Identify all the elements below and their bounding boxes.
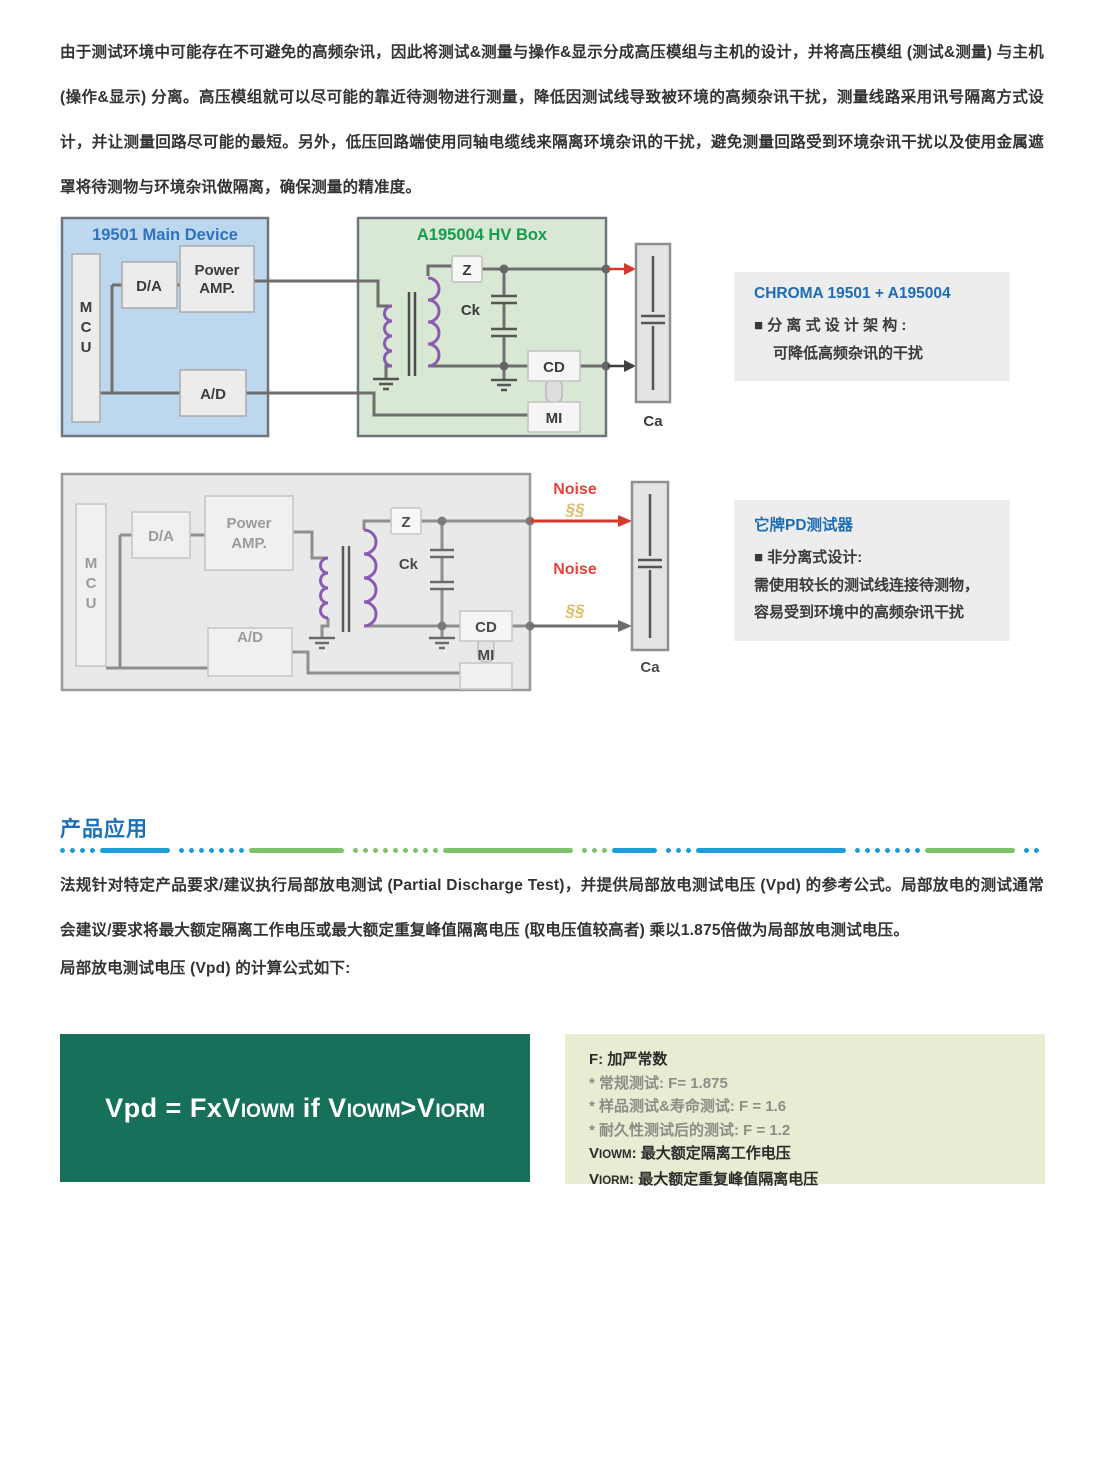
circuit-diagram-chroma-separated: 19501 Main Device A195004 HV Box [60,216,676,441]
da-label: D/A [136,278,162,295]
callout-line-2: 需使用较长的测试线连接待测物， [754,572,990,600]
callout-title: 它牌PD测试器 [754,513,990,535]
ck-label: Ck [399,556,419,573]
interference-glyph-bottom: §§ [565,601,585,620]
mcu-letter-m: M [85,555,98,572]
hv-output-arrow [608,263,636,275]
ca-dut [636,244,670,402]
formula-legend-box: F: 加严常数 * 常规测试: F= 1.875 * 样品测试&寿命测试: F … [565,1034,1045,1184]
formula-intro: 局部放电测试电压 (Vpd) 的计算公式如下: [60,946,1044,991]
callout-bullet-line: ■ 非分离式设计: [754,544,990,572]
legend-endurance-test: * 耐久性测试后的测试: F = 1.2 [589,1119,1021,1143]
callout-bullet-line: ■ 分 离 式 设 计 架 构 : [754,312,990,340]
ck-label: Ck [461,302,481,319]
section-title-product-application: 产品应用 [60,813,148,843]
mcu-letter-c: C [86,575,97,592]
z-label: Z [401,514,410,531]
callout-other-brand: 它牌PD测试器 ■ 非分离式设计: 需使用较长的测试线连接待测物， 容易受到环境… [734,500,1010,641]
cd-mi-connector [546,379,562,403]
legend-viorm: VIORM: 最大额定重复峰值隔离电压 [589,1168,1021,1194]
mi-box [460,663,512,689]
diagram-row-other-brand: Ck M C U D/A Power AMP. A/D Z CD MI [60,470,1050,695]
legend-viowm: VIOWM: 最大额定隔离工作电压 [589,1142,1021,1168]
power-amp-box [205,496,293,570]
diagram-row-separated-design: 19501 Main Device A195004 HV Box [60,216,1050,441]
ad-label: A/D [200,386,226,403]
tester-box [62,474,530,690]
noisy-return-lead-arrow [530,620,632,632]
callout-line-3: 容易受到环境中的高频杂讯干扰 [754,599,990,627]
mcu-letter-u: U [81,339,92,356]
formula-text: Vpd = FxVIOWM if VIOWM>VIORM [105,1093,485,1124]
z-label: Z [462,262,471,279]
da-label: D/A [148,528,174,545]
section-divider [60,846,1044,854]
mi-label: MI [478,647,495,664]
power-amp-label-2: AMP. [231,535,267,552]
mcu-letter-m: M [80,299,93,316]
ca-label: Ca [640,659,660,676]
noise-label-bottom: Noise [553,561,597,578]
circuit-diagram-other-brand: Ck M C U D/A Power AMP. A/D Z CD MI [60,470,676,695]
formula-row: Vpd = FxVIOWM if VIOWM>VIORM F: 加严常数 * 常… [60,1034,1045,1184]
power-amp-box [180,246,254,312]
callout-line-2: 可降低高频杂讯的干扰 [754,340,990,368]
ad-label: A/D [237,629,263,646]
mcu-box [72,254,100,422]
power-amp-label-1: Power [226,515,271,532]
ca-dut [632,482,668,650]
callout-title: CHROMA 19501 + A195004 [754,285,990,303]
main-device-title: 19501 Main Device [92,226,238,244]
legend-f-constant: F: 加严常数 [589,1048,1021,1072]
legend-sample-life-test: * 样品测试&寿命测试: F = 1.6 [589,1095,1021,1119]
interference-glyph-top: §§ [565,500,585,519]
power-amp-label-2: AMP. [199,280,235,297]
application-paragraph: 法规针对特定产品要求/建议执行局部放电测试 (Partial Discharge… [60,863,1044,953]
measure-return-arrow [608,360,636,372]
callout-chroma-design: CHROMA 19501 + A195004 ■ 分 离 式 设 计 架 构 :… [734,272,1010,381]
hv-box-title: A195004 HV Box [417,226,548,244]
legend-regular-test: * 常规测试: F= 1.875 [589,1072,1021,1096]
ca-label: Ca [643,413,663,430]
power-amp-label-1: Power [194,262,239,279]
mcu-letter-c: C [81,319,92,336]
cd-label: CD [543,359,565,376]
vpd-formula-box: Vpd = FxVIOWM if VIOWM>VIORM [60,1034,530,1182]
intro-paragraph: 由于测试环境中可能存在不可避免的高频杂讯，因此将测试&测量与操作&显示分成高压模… [60,30,1044,210]
mi-label: MI [546,410,563,427]
cd-label: CD [475,619,497,636]
noise-label-top: Noise [553,481,597,498]
mcu-letter-u: U [86,595,97,612]
